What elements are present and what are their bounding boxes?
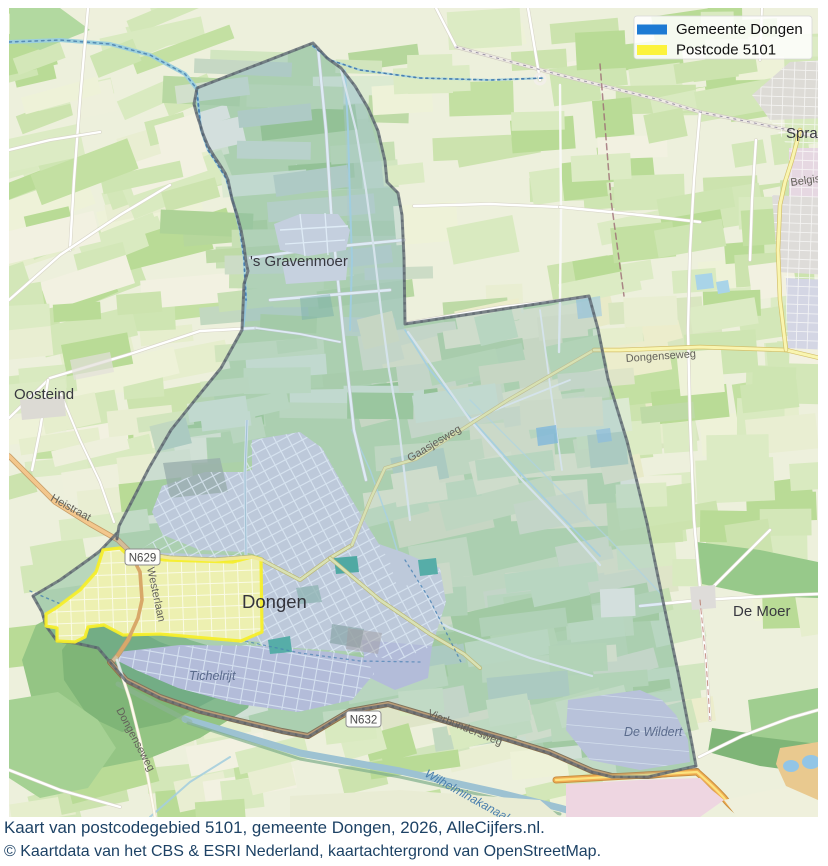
svg-text:De Moer: De Moer — [733, 603, 791, 620]
svg-text:N632: N632 — [350, 715, 378, 727]
svg-text:Postcode 5101: Postcode 5101 — [676, 42, 776, 59]
svg-text:Kaart van postcodegebied 5101,: Kaart van postcodegebied 5101, gemeente … — [4, 818, 545, 837]
svg-text:Dongen: Dongen — [242, 591, 307, 612]
svg-text:Tichelrijt: Tichelrijt — [189, 669, 236, 683]
svg-text:Gemeente Dongen: Gemeente Dongen — [676, 21, 803, 38]
svg-text:© Kaartdata van het CBS & ESRI: © Kaartdata van het CBS & ESRI Nederland… — [4, 843, 601, 860]
svg-text:De Wildert: De Wildert — [624, 725, 683, 739]
svg-text:'s Gravenmoer: 's Gravenmoer — [250, 253, 348, 270]
svg-text:N629: N629 — [129, 553, 157, 565]
svg-text:Oosteind: Oosteind — [14, 386, 74, 403]
